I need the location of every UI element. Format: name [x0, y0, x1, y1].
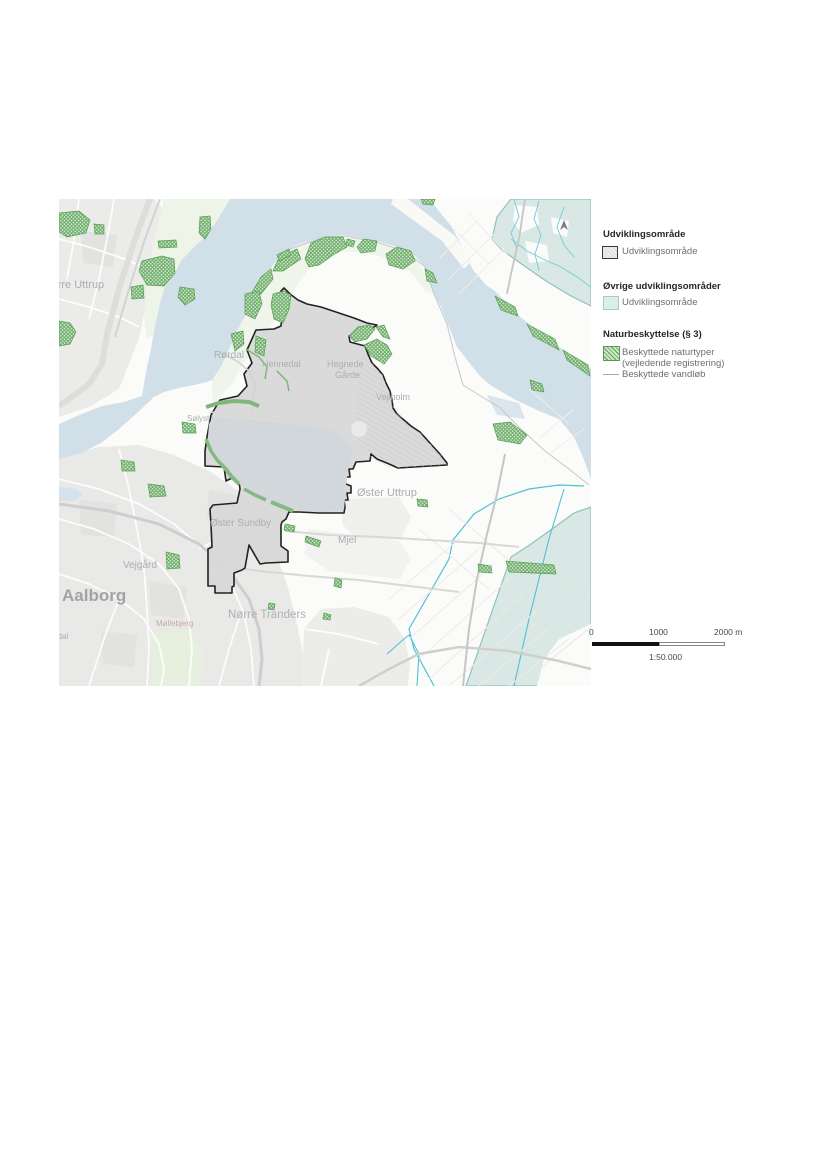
- svg-text:Sølyst: Sølyst: [187, 414, 210, 423]
- svg-text:Nørre Tranders: Nørre Tranders: [228, 609, 306, 621]
- svg-text:ndal: ndal: [59, 632, 68, 641]
- svg-text:Hennedal: Hennedal: [262, 359, 301, 369]
- svg-text:Rørdal: Rørdal: [214, 350, 244, 361]
- svg-text:Møllebjerg: Møllebjerg: [156, 619, 193, 628]
- svg-text:Mjel: Mjel: [338, 535, 356, 546]
- svg-text:Aalborg: Aalborg: [62, 586, 126, 605]
- svg-text:Gårde: Gårde: [335, 370, 360, 380]
- svg-text:Vejgård: Vejgård: [123, 559, 157, 571]
- svg-text:Øster Sundby: Øster Sundby: [210, 518, 271, 529]
- svg-text:Øster Uttrup: Øster Uttrup: [357, 487, 417, 499]
- svg-text:ørre Uttrup: ørre Uttrup: [59, 279, 104, 291]
- svg-text:Vejlholm: Vejlholm: [376, 392, 410, 402]
- svg-text:Hegnede: Hegnede: [327, 359, 364, 369]
